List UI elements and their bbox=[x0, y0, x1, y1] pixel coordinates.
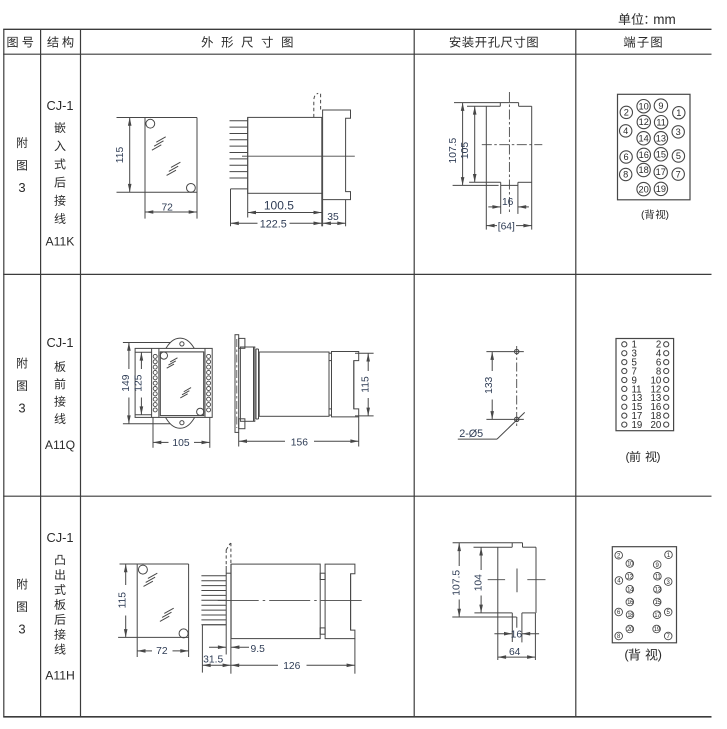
svg-text:): ) bbox=[665, 209, 669, 221]
svg-text:107.5: 107.5 bbox=[452, 570, 463, 596]
svg-text:115: 115 bbox=[115, 147, 126, 164]
svg-text:9: 9 bbox=[658, 101, 663, 111]
svg-text:12: 12 bbox=[639, 117, 649, 127]
svg-text:): ) bbox=[658, 647, 662, 662]
svg-text:115: 115 bbox=[361, 376, 372, 393]
svg-text:6: 6 bbox=[624, 152, 629, 162]
svg-text:1: 1 bbox=[676, 108, 681, 118]
svg-text:3: 3 bbox=[18, 180, 25, 195]
svg-text:19: 19 bbox=[656, 184, 666, 194]
svg-text:(: ( bbox=[626, 450, 630, 464]
svg-text:125: 125 bbox=[134, 374, 145, 391]
svg-text:20: 20 bbox=[638, 184, 648, 194]
svg-text:105: 105 bbox=[172, 438, 189, 449]
svg-text:CJ-1: CJ-1 bbox=[46, 335, 73, 350]
svg-text:(: ( bbox=[641, 209, 645, 221]
svg-text:3: 3 bbox=[676, 127, 681, 137]
svg-text:13: 13 bbox=[656, 134, 666, 144]
svg-text:CJ-1: CJ-1 bbox=[46, 98, 73, 113]
svg-text:16: 16 bbox=[502, 197, 514, 208]
svg-text:(: ( bbox=[624, 647, 629, 662]
svg-text:mm: mm bbox=[653, 12, 676, 27]
svg-text:107.5: 107.5 bbox=[448, 137, 459, 163]
svg-text:19: 19 bbox=[632, 420, 643, 431]
svg-text:[64]: [64] bbox=[498, 221, 515, 232]
svg-text:18: 18 bbox=[638, 165, 648, 175]
svg-text:20: 20 bbox=[651, 420, 662, 431]
svg-text:15: 15 bbox=[656, 150, 666, 160]
svg-text:11: 11 bbox=[656, 117, 666, 127]
svg-text:14: 14 bbox=[638, 134, 648, 144]
svg-text:104: 104 bbox=[473, 574, 484, 591]
svg-text:72: 72 bbox=[161, 203, 173, 214]
svg-text:133: 133 bbox=[484, 376, 495, 393]
svg-text:31.5: 31.5 bbox=[203, 654, 223, 665]
svg-text:156: 156 bbox=[291, 437, 308, 448]
svg-text:35: 35 bbox=[327, 212, 339, 223]
svg-text:72: 72 bbox=[156, 646, 168, 657]
svg-text:): ) bbox=[657, 450, 661, 464]
svg-text:A11H: A11H bbox=[45, 669, 75, 683]
svg-text:126: 126 bbox=[283, 661, 300, 672]
svg-text:149: 149 bbox=[121, 374, 132, 391]
svg-text:64: 64 bbox=[509, 647, 521, 658]
svg-text:A11K: A11K bbox=[46, 234, 75, 248]
svg-text:CJ-1: CJ-1 bbox=[46, 530, 73, 545]
svg-text:100.5: 100.5 bbox=[264, 199, 294, 213]
svg-text:122.5: 122.5 bbox=[260, 219, 287, 231]
svg-text:17: 17 bbox=[656, 167, 666, 177]
svg-text:5: 5 bbox=[676, 151, 681, 161]
svg-text:A11Q: A11Q bbox=[45, 438, 75, 452]
svg-text:105: 105 bbox=[460, 142, 471, 159]
svg-text:8: 8 bbox=[623, 170, 628, 180]
svg-text:9.5: 9.5 bbox=[251, 644, 266, 655]
svg-text:2: 2 bbox=[624, 108, 629, 118]
svg-text:7: 7 bbox=[676, 169, 681, 179]
svg-text:2-Ø5: 2-Ø5 bbox=[459, 428, 483, 440]
svg-text:4: 4 bbox=[623, 126, 628, 136]
svg-text:16: 16 bbox=[511, 630, 523, 641]
svg-text:10: 10 bbox=[638, 101, 648, 111]
svg-text:3: 3 bbox=[18, 400, 25, 415]
svg-text:115: 115 bbox=[117, 592, 128, 609]
svg-text:3: 3 bbox=[18, 621, 25, 636]
svg-text:16: 16 bbox=[639, 150, 649, 160]
